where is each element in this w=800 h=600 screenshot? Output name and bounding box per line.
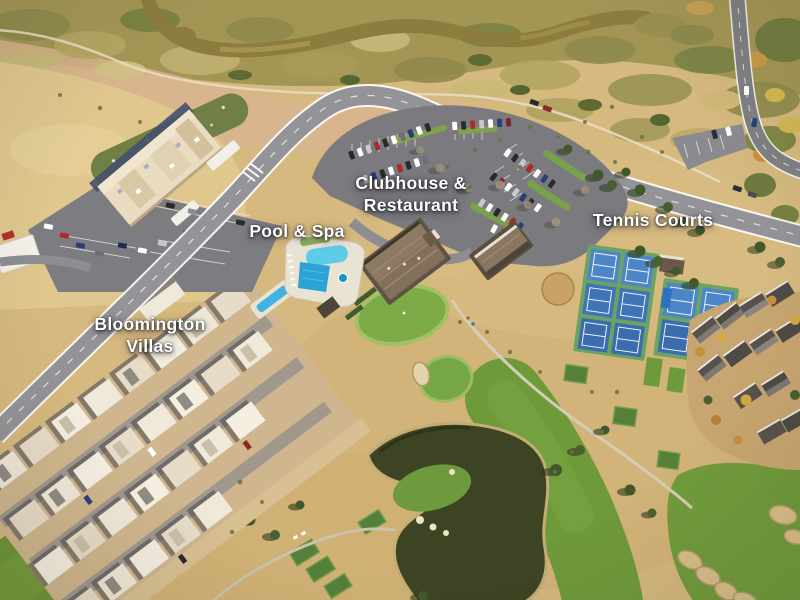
label-line: Tennis Courts (593, 209, 713, 231)
label-line: Restaurant (364, 194, 458, 216)
label-line: Clubhouse & (355, 172, 466, 194)
label-line: Villas (126, 335, 173, 357)
label-tennis-courts: Tennis Courts (593, 209, 713, 231)
label-clubhouse-restaurant: Clubhouse & Restaurant (355, 172, 466, 216)
spa-tub (339, 274, 348, 283)
aerial-photo: Clubhouse & Restaurant Pool & Spa Tennis… (0, 0, 800, 600)
label-pool-spa: Pool & Spa (249, 220, 344, 242)
label-bloomington-villas: Bloomington Villas (94, 313, 205, 357)
label-line: Bloomington (94, 313, 205, 335)
tennis-bank-west (573, 244, 659, 361)
label-line: Pool & Spa (249, 220, 344, 242)
